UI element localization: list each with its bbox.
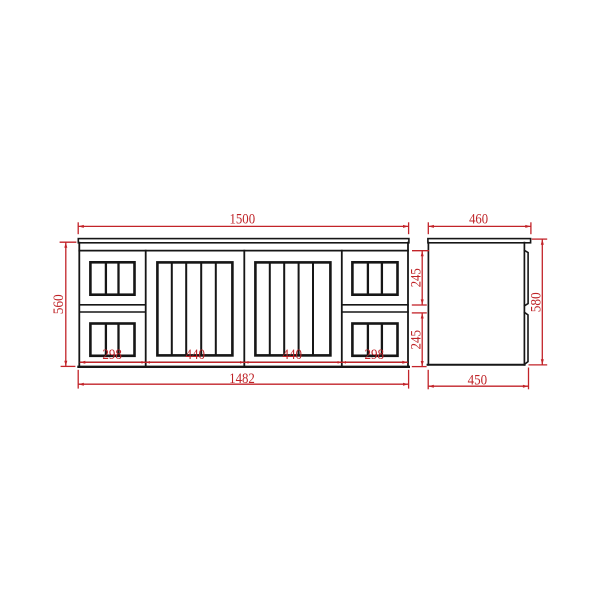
svg-text:560: 560 [50, 294, 67, 314]
svg-text:1482: 1482 [229, 370, 255, 387]
svg-text:245: 245 [407, 268, 424, 287]
svg-text:1500: 1500 [230, 211, 256, 228]
svg-text:580: 580 [527, 292, 544, 312]
svg-text:245: 245 [407, 330, 424, 350]
svg-text:450: 450 [468, 371, 488, 388]
svg-text:440: 440 [282, 346, 302, 363]
svg-text:298: 298 [365, 346, 385, 363]
svg-text:460: 460 [469, 211, 488, 228]
svg-text:440: 440 [185, 346, 205, 363]
svg-text:298: 298 [102, 346, 122, 363]
